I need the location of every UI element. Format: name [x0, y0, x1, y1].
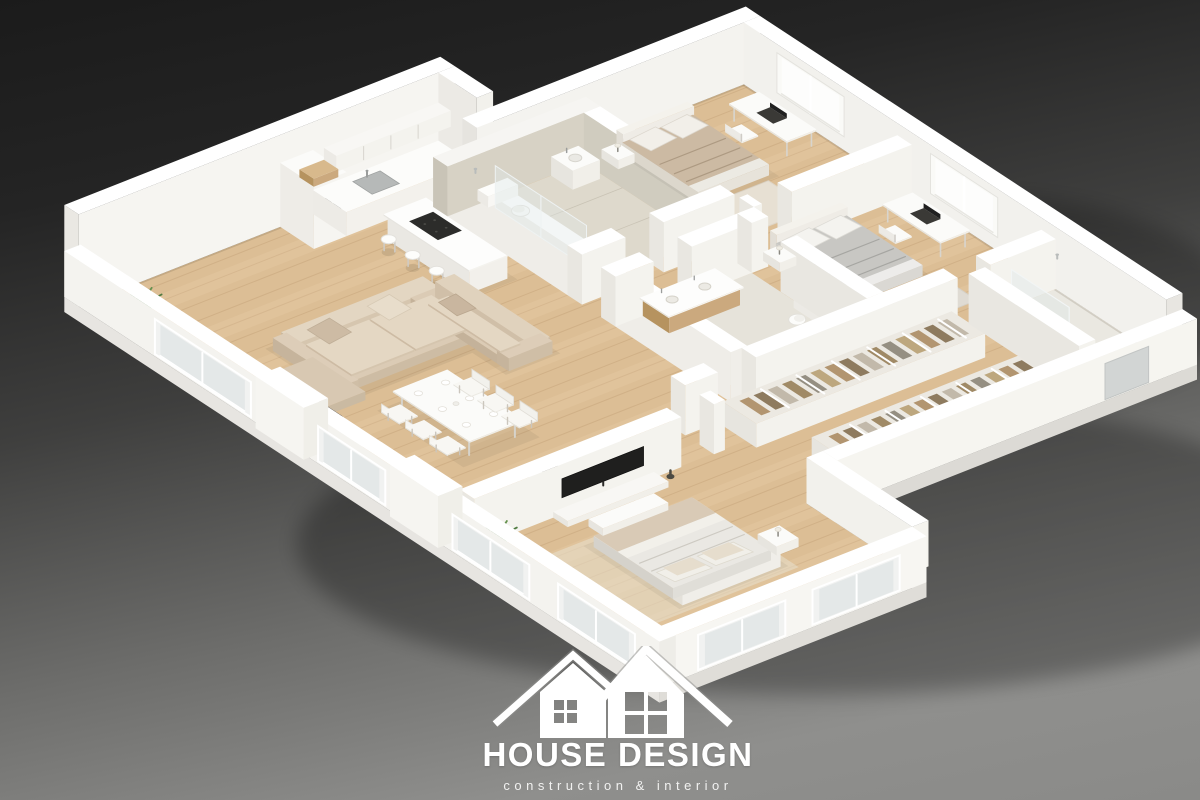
floor-plan-render: HOUSE DESIGN construction & interior	[0, 0, 1200, 800]
brand-logo: HOUSE DESIGN construction & interior	[438, 646, 798, 793]
logo-houses-icon	[478, 646, 758, 742]
brand-title: HOUSE DESIGN	[438, 738, 798, 771]
brand-subtitle: construction & interior	[438, 778, 798, 793]
